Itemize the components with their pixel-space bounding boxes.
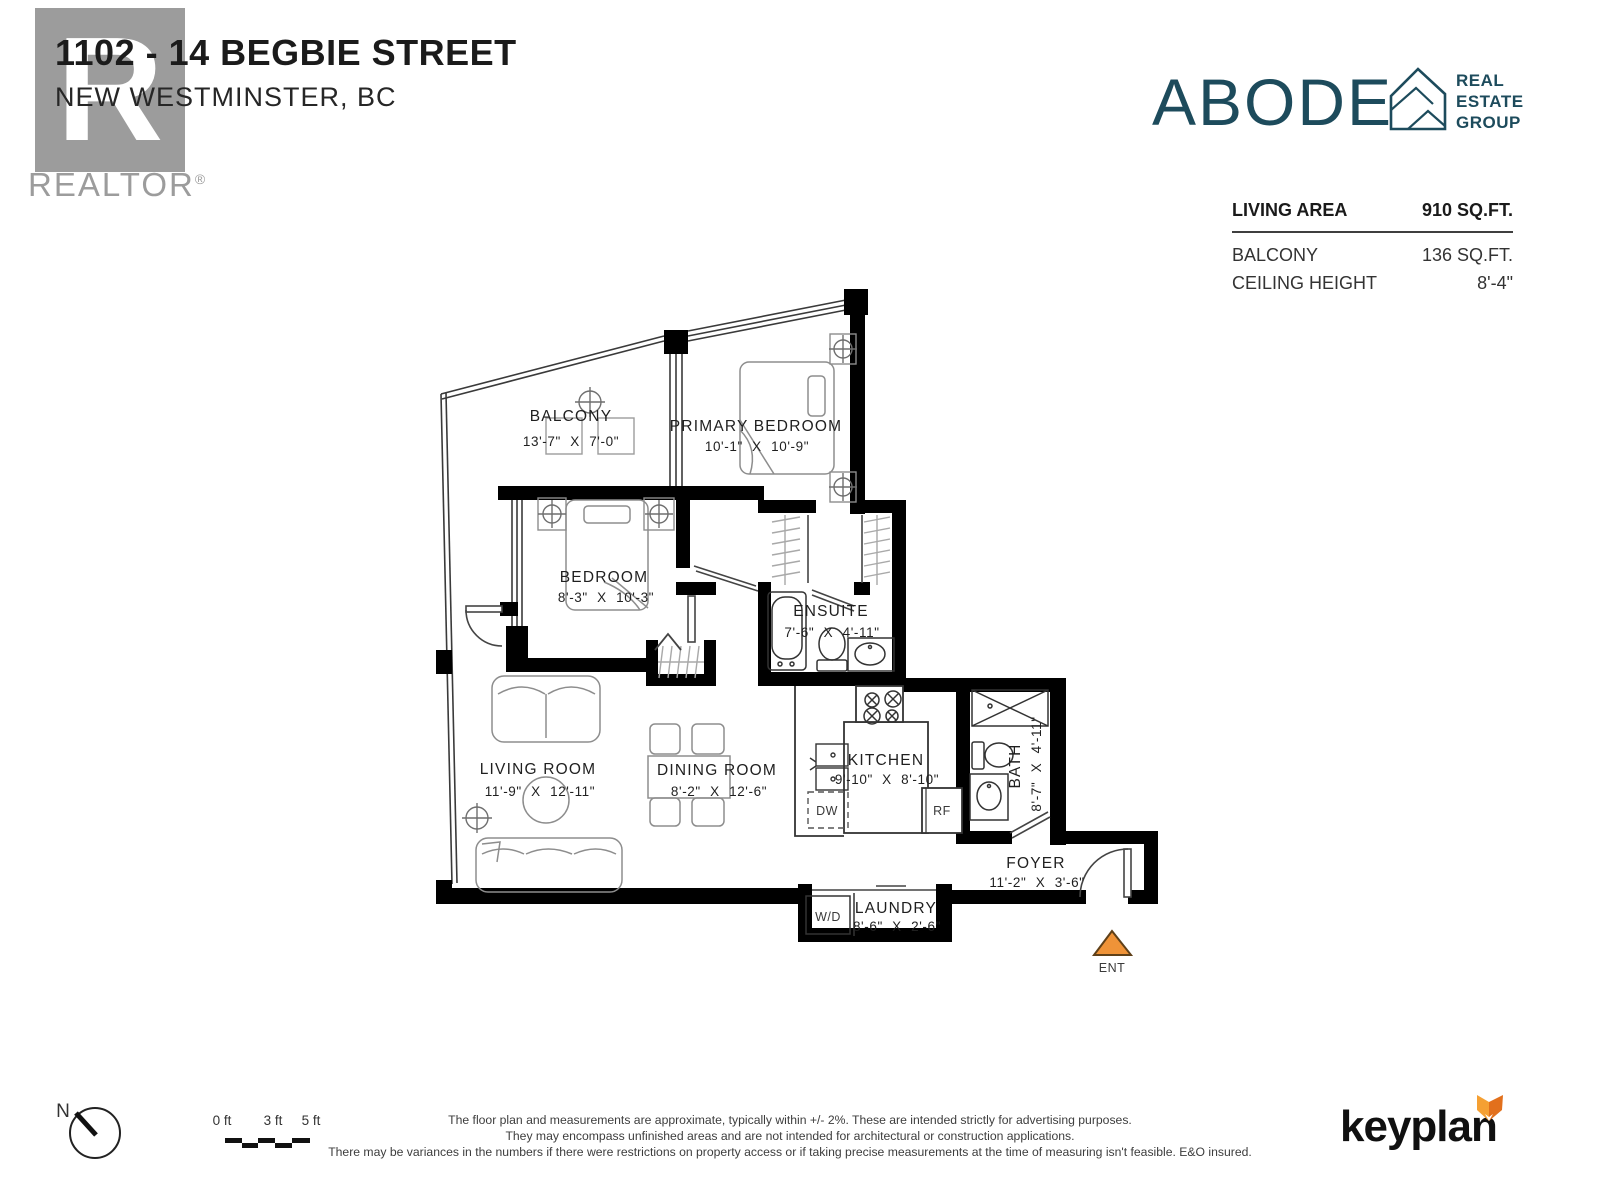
realtor-wordmark-text: REALTOR xyxy=(28,166,195,203)
ensuite-sink-icon xyxy=(848,638,894,671)
closet-door-chevron xyxy=(655,634,681,650)
fridge-label: RF xyxy=(933,804,951,818)
sofa-icon xyxy=(476,838,622,892)
washer-dryer-label: W/D xyxy=(815,910,841,924)
disclaimer-line: There may be variances in the numbers if… xyxy=(300,1144,1280,1160)
room-dims-primary-bedroom: 10'-1" X 10'-9" xyxy=(705,439,809,454)
floor-plan-sheet: R REALTOR® 1102 - 14 BEGBIE STREET NEW W… xyxy=(0,0,1600,1200)
disclaimer-line: They may encompass unfinished areas and … xyxy=(300,1128,1280,1144)
room-label-balcony: BALCONY xyxy=(530,408,612,425)
room-dims-bedroom: 8'-3" X 10'-3" xyxy=(558,590,654,605)
room-label-laundry: LAUNDRY xyxy=(855,900,937,917)
listing-address: 1102 - 14 BEGBIE STREET xyxy=(55,32,517,74)
disclaimer-line: The floor plan and measurements are appr… xyxy=(300,1112,1280,1128)
room-label-living-room: LIVING ROOM xyxy=(480,761,597,778)
room-label-dining-room: DINING ROOM xyxy=(657,762,777,779)
room-dims-laundry: 8'-6" X 2'-6" xyxy=(853,919,941,934)
entry-arrow-icon xyxy=(1094,931,1131,955)
compass-icon: N xyxy=(56,1101,120,1158)
room-label-bedroom: BEDROOM xyxy=(560,569,649,586)
registered-mark: ® xyxy=(195,171,207,187)
floor-plan-drawing: BALCONY 13'-7" X 7'-0" PRIMARY BEDROOM 1… xyxy=(0,0,1600,1200)
scale-label-0: 0 ft xyxy=(213,1113,232,1128)
entry-label: ENT xyxy=(1099,961,1126,975)
realtor-wordmark: REALTOR® xyxy=(28,166,207,204)
room-label-ensuite: ENSUITE xyxy=(793,603,869,620)
room-label-bath: BATH xyxy=(1007,744,1024,789)
room-label-foyer: FOYER xyxy=(1006,855,1065,872)
compass-north-label: N xyxy=(56,1101,70,1122)
room-label-kitchen: KITCHEN xyxy=(848,752,924,769)
room-dims-living-room: 11'-9" X 12'-11" xyxy=(485,784,595,799)
room-dims-balcony: 13'-7" X 7'-0" xyxy=(523,434,619,449)
dishwasher-label: DW xyxy=(816,804,838,818)
loveseat-icon xyxy=(492,676,600,742)
bath-sink-icon xyxy=(970,774,1008,820)
disclaimer: The floor plan and measurements are appr… xyxy=(300,1112,1280,1161)
room-dims-dining-room: 8'-2" X 12'-6" xyxy=(671,784,767,799)
scale-label-3: 3 ft xyxy=(264,1113,283,1128)
room-label-primary-bedroom: PRIMARY BEDROOM xyxy=(670,418,842,435)
room-dims-ensuite: 7'-6" X 4'-11" xyxy=(784,625,879,640)
listing-city: NEW WESTMINSTER, BC xyxy=(55,82,397,113)
keyplan-fox-icon xyxy=(1474,1092,1506,1124)
room-dims-bath: 8'-7" X 4'-11" xyxy=(1029,716,1044,811)
room-dims-kitchen: 9'-10" X 8'-10" xyxy=(835,772,939,787)
room-dims-foyer: 11'-2" X 3'-6" xyxy=(989,875,1084,890)
